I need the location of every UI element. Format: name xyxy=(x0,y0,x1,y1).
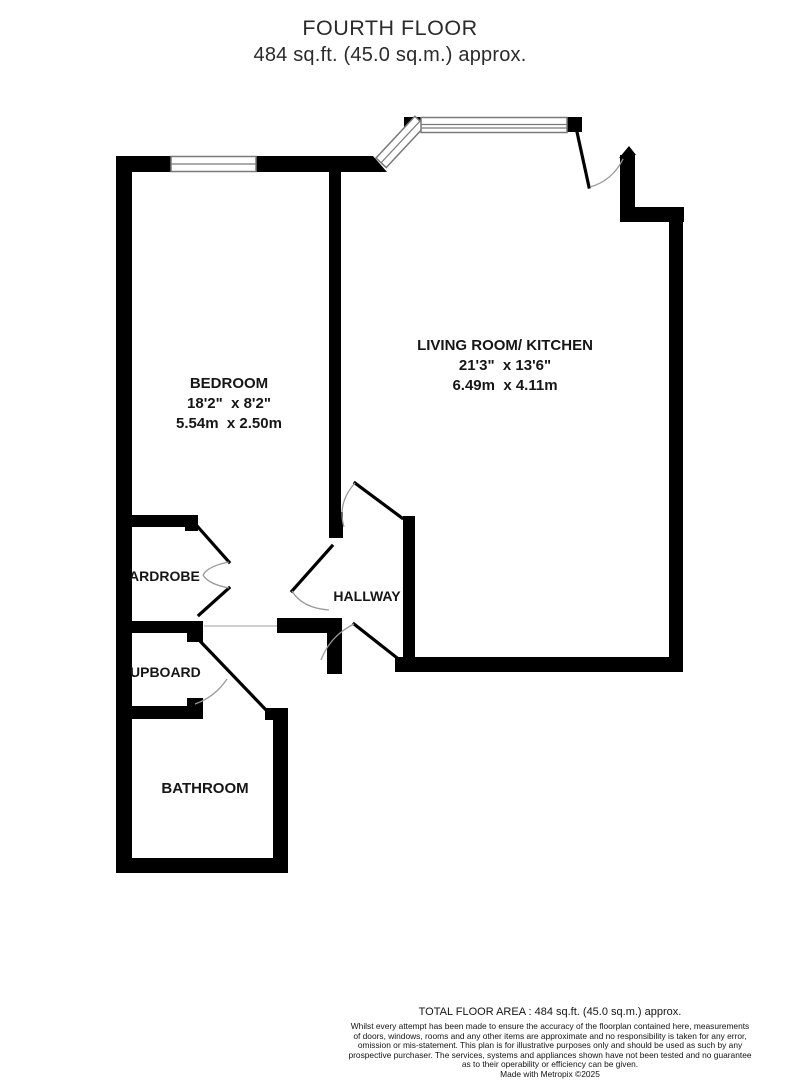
bathroom-door-leaf xyxy=(199,640,267,711)
plan-footer: TOTAL FLOOR AREA : 484 sq.ft. (45.0 sq.m… xyxy=(330,1006,770,1080)
total-floor-area: TOTAL FLOOR AREA : 484 sq.ft. (45.0 sq.m… xyxy=(330,1006,770,1018)
bedroom-door-leaf xyxy=(292,546,332,591)
wall-hallway-entry-jamb xyxy=(327,618,342,674)
wall-bedroom-top-left xyxy=(116,156,172,172)
wardrobe-door-arc-top xyxy=(203,562,229,575)
wall-divider-end-jamb xyxy=(329,512,343,538)
wall-divider-jamb xyxy=(187,621,203,642)
wall-divider-bedroom-living xyxy=(329,162,341,528)
wall-wardrobe-top-jamb xyxy=(185,515,198,531)
wardrobe-door-arc-bottom xyxy=(203,575,229,588)
wall-bathroom-bottom xyxy=(116,858,288,873)
balcony-door-leaf xyxy=(577,132,589,187)
room-labels: LIVING ROOM/ KITCHEN 21'3" x 13'6" 6.49m… xyxy=(129,337,593,797)
walls xyxy=(116,117,684,873)
label-bedroom-dims-imperial: 18'2" x 8'2" xyxy=(187,395,271,412)
floorplan-svg: LIVING ROOM/ KITCHEN 21'3" x 13'6" 6.49m… xyxy=(0,0,800,1080)
bay-window-angled xyxy=(376,116,425,167)
wall-living-bottom xyxy=(395,657,683,672)
label-living-dims-imperial: 21'3" x 13'6" xyxy=(459,357,551,374)
label-living-room: LIVING ROOM/ KITCHEN xyxy=(417,337,593,354)
label-living-dims-metric: 6.49m x 4.11m xyxy=(452,377,557,394)
balcony-door-arc xyxy=(590,159,623,187)
metropix-credit: Made with Metropix ©2025 xyxy=(330,1070,770,1080)
bedroom-door-arc xyxy=(292,591,329,610)
label-hallway: HALLWAY xyxy=(333,588,401,604)
label-bedroom-dims-metric: 5.54m x 2.50m xyxy=(176,415,282,432)
wall-bathroom-right-jamb xyxy=(265,708,288,720)
wall-wardrobe-cupboard-divider xyxy=(116,621,189,633)
wall-exterior-right xyxy=(669,207,683,672)
living-door-arc xyxy=(342,483,355,527)
entrance-door-leaf xyxy=(354,624,401,661)
bay-window-top xyxy=(421,118,567,133)
wall-hallway-right xyxy=(403,516,415,662)
living-door-leaf xyxy=(355,483,402,518)
wall-bathroom-right xyxy=(273,708,288,873)
label-bathroom: BATHROOM xyxy=(161,780,248,797)
label-bedroom: BEDROOM xyxy=(190,375,268,392)
wall-bedroom-top-right xyxy=(255,156,387,172)
label-wardrobe: ARDROBE xyxy=(129,568,200,584)
wardrobe-door-leaf-bottom xyxy=(199,588,229,615)
wardrobe-door-leaf-top xyxy=(198,527,229,562)
wall-exterior-left xyxy=(116,156,132,873)
wall-wardrobe-top xyxy=(116,515,187,527)
floorplan-page: FOURTH FLOOR 484 sq.ft. (45.0 sq.m.) app… xyxy=(0,0,800,1080)
bedroom-window xyxy=(171,157,256,172)
wall-cupboard-bottom xyxy=(116,706,189,719)
label-cupboard: UPBOARD xyxy=(130,664,201,680)
